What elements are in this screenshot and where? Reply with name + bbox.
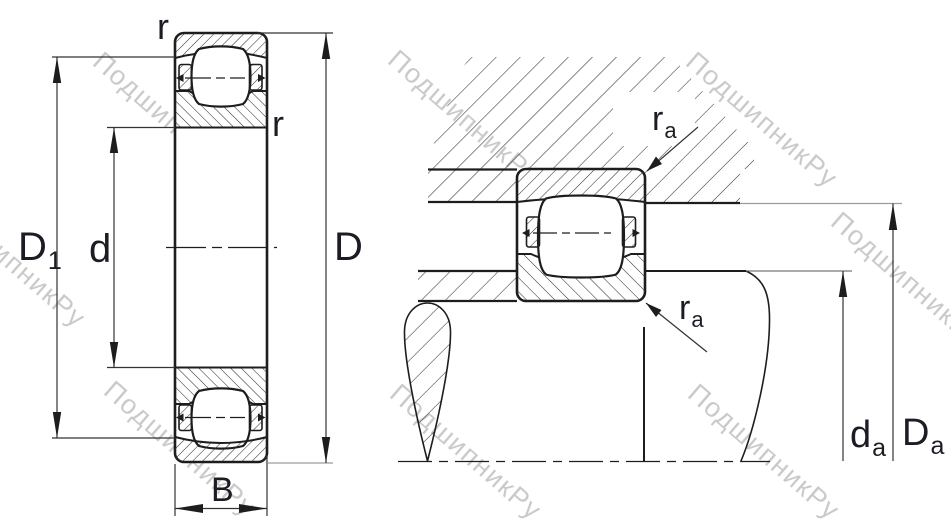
label-Da: Da bbox=[902, 414, 943, 452]
label-D1: D1 bbox=[18, 227, 61, 267]
label-r-inner: r bbox=[272, 106, 284, 142]
label-ra-top: ra bbox=[652, 102, 676, 136]
label-r-top: r bbox=[157, 9, 169, 45]
bearing-drawing-page: ПодшипникРу ПодшипникРу ПодшипникРу Подш… bbox=[0, 0, 951, 532]
dimension-labels: r r D1 d D B ra ra da Da bbox=[0, 0, 951, 532]
label-da: da bbox=[850, 416, 885, 454]
label-B: B bbox=[211, 473, 234, 507]
label-d: d bbox=[89, 229, 111, 269]
label-D: D bbox=[334, 227, 363, 267]
label-ra-bottom: ra bbox=[679, 291, 703, 325]
